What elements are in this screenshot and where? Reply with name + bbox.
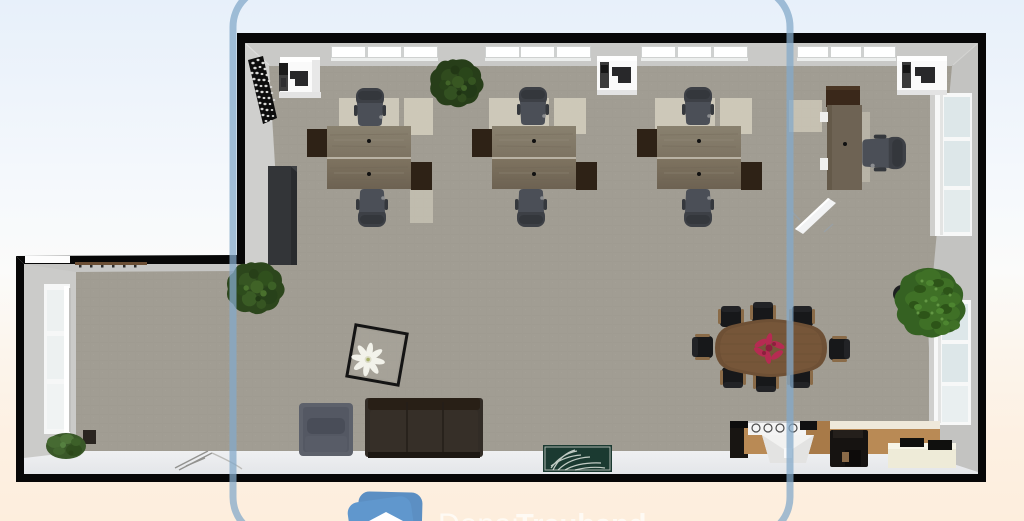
svg-text:Treuhand: Treuhand	[516, 509, 647, 521]
